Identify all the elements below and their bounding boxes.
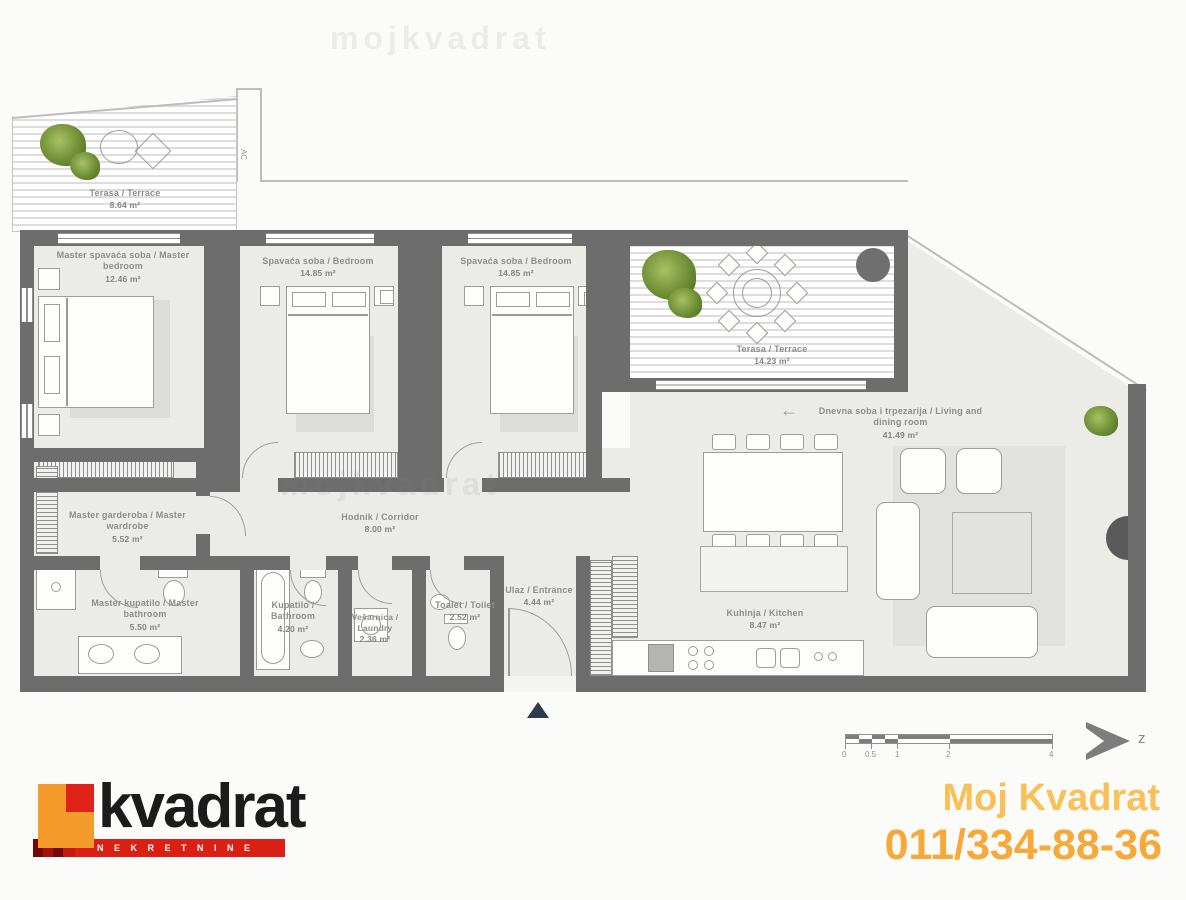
pillow xyxy=(292,292,326,307)
plant-icon xyxy=(668,288,702,318)
scale-bar xyxy=(845,734,1053,744)
coffee-table xyxy=(952,512,1032,594)
armchair xyxy=(956,448,1002,494)
entrance-door-leaf xyxy=(508,608,510,676)
dining-chair xyxy=(746,434,770,450)
window xyxy=(58,233,180,244)
room-area: 14.23 m² xyxy=(697,356,847,367)
watermark: mojkvadrat xyxy=(280,466,501,503)
roof-line-top xyxy=(260,180,908,182)
room-area: 4.44 m² xyxy=(504,597,574,608)
room-area: 8.00 m² xyxy=(340,524,420,535)
cabinet-icon xyxy=(648,644,674,672)
armchair xyxy=(900,448,946,494)
scale-tick-label: 2 xyxy=(946,750,950,759)
door-opening xyxy=(196,496,210,534)
room-area: 4.20 m² xyxy=(254,624,332,635)
sink-basin-icon xyxy=(780,648,800,668)
window xyxy=(21,288,33,322)
scale-tick-label: 0.5 xyxy=(865,750,876,759)
nightstand xyxy=(260,286,280,306)
room-label-terrace-2: Terasa / Terrace 14.23 m² xyxy=(697,344,847,367)
room-name: Dnevna soba i trpezarija / Living and di… xyxy=(818,406,983,429)
door-opening xyxy=(358,556,392,570)
pillow xyxy=(496,292,530,307)
watermark: mojkvadrat xyxy=(330,20,551,57)
room-label-corridor: Hodnik / Corridor 8.00 m² xyxy=(340,512,420,535)
door-opening xyxy=(290,556,326,570)
wall-terrace2-left xyxy=(602,230,630,392)
scale-segment xyxy=(898,735,950,739)
room-label-terrace-1: Terasa / Terrace 8.64 m² xyxy=(50,188,200,211)
room-label-toilet: Toalet / Toilet 2.52 m² xyxy=(430,600,500,623)
stove-burner-icon xyxy=(688,646,698,656)
sink-basin-icon xyxy=(756,648,776,668)
fridge-icon xyxy=(612,556,638,638)
room-name: Kupatilo / Bathroom xyxy=(254,600,332,623)
scale-tick-label: 0 xyxy=(842,750,846,759)
wall-entry-kitchen xyxy=(576,556,590,692)
room-area: 2.52 m² xyxy=(430,612,500,623)
stove-burner-icon xyxy=(688,660,698,670)
room-label-laundry: Vešarnica / Laundry 2.36 m² xyxy=(338,612,412,645)
room-label-living: Dnevna soba i trpezarija / Living and di… xyxy=(818,406,983,440)
room-label-entrance: Ulaz / Entrance 4.44 m² xyxy=(504,585,574,608)
terrace-dining-table-inner xyxy=(742,278,772,308)
plant-icon xyxy=(1084,406,1118,436)
entry-closet xyxy=(590,560,612,676)
dining-chair xyxy=(712,434,736,450)
room-label-bathroom: Kupatilo / Bathroom 4.20 m² xyxy=(254,600,332,634)
nightstand xyxy=(38,414,60,436)
room-name: Master kupatilo / Master bathroom xyxy=(80,598,210,621)
terrace-1-floor xyxy=(12,96,237,232)
scale-tick xyxy=(845,744,846,749)
wardrobe-closet xyxy=(498,452,600,478)
scale-segment xyxy=(950,739,1052,743)
room-label-bedroom-3: Spavaća soba / Bedroom 14.85 m² xyxy=(441,256,591,279)
dining-chair xyxy=(780,434,804,450)
door-arc xyxy=(430,570,464,604)
room-name: Terasa / Terrace xyxy=(50,188,200,199)
pillow xyxy=(332,292,366,307)
wall-right xyxy=(1128,384,1146,692)
fixture-icon xyxy=(814,652,823,661)
room-area: 14.85 m² xyxy=(243,268,393,279)
room-name: Kuhinja / Kitchen xyxy=(700,608,830,619)
room-label-bedroom-2: Spavaća soba / Bedroom 14.85 m² xyxy=(243,256,393,279)
room-area: 14.85 m² xyxy=(441,268,591,279)
scale-segment xyxy=(859,739,872,743)
wall-terrace2-right xyxy=(894,230,908,392)
room-label-master-bathroom: Master kupatilo / Master bathroom 5.50 m… xyxy=(80,598,210,632)
wall-master-wardrobe xyxy=(20,448,210,462)
pillow xyxy=(44,356,60,394)
wall-toilet-entry xyxy=(490,556,504,692)
toilet-bowl xyxy=(448,626,466,650)
scale-segment xyxy=(872,735,885,739)
scale-tick xyxy=(949,744,950,749)
room-area: 5.52 m² xyxy=(60,534,195,545)
wall-mbath-bath xyxy=(240,570,254,692)
north-label: z xyxy=(1138,730,1146,747)
scale-segment xyxy=(885,739,898,743)
sink-icon xyxy=(88,644,114,664)
plant-icon xyxy=(70,152,100,180)
room-area: 8.64 m² xyxy=(50,200,200,211)
window xyxy=(266,233,374,244)
wall-unit-icon xyxy=(380,290,394,304)
scale-segment xyxy=(846,735,859,739)
entrance-opening xyxy=(504,676,576,692)
sofa xyxy=(926,606,1038,658)
logo-text: kvadrat xyxy=(98,776,305,838)
door-arc xyxy=(210,496,246,536)
sink-icon xyxy=(134,644,160,664)
room-area: 5.50 m² xyxy=(80,622,210,633)
room-name: Toalet / Toilet xyxy=(430,600,500,611)
room-area: 12.46 m² xyxy=(48,274,198,285)
room-name: Spavaća soba / Bedroom xyxy=(243,256,393,267)
agency-phone: 011/334-88-36 xyxy=(885,822,1162,869)
fixture-icon xyxy=(828,652,837,661)
pillow xyxy=(44,304,60,342)
window xyxy=(21,404,33,438)
hot-tub-icon xyxy=(856,248,890,282)
wall-laundry-toilet xyxy=(412,570,426,692)
bed-line xyxy=(66,298,68,406)
pillow xyxy=(536,292,570,307)
terrace-door-window xyxy=(656,380,866,390)
scale-tick xyxy=(897,744,898,749)
wall-master-bed2 xyxy=(204,230,240,480)
room-area: 41.49 m² xyxy=(818,430,983,441)
window xyxy=(468,233,572,244)
ac-label: AC xyxy=(239,149,248,160)
agency-name: Moj Kvadrat xyxy=(943,778,1160,820)
wall-bed2-bed3 xyxy=(398,230,442,480)
room-name: Master garderoba / Master wardrobe xyxy=(60,510,195,533)
door-arc xyxy=(358,570,392,604)
nightstand xyxy=(464,286,484,306)
logo-red-square xyxy=(66,784,94,812)
room-label-wardrobe: Master garderoba / Master wardrobe 5.52 … xyxy=(60,510,195,544)
bed-line xyxy=(492,314,572,316)
kitchen-island xyxy=(700,546,848,592)
door-opening xyxy=(430,556,464,570)
stove-burner-icon xyxy=(704,660,714,670)
shower-drain-icon xyxy=(51,582,61,592)
sofa xyxy=(876,502,920,600)
orientation-arrow: ← xyxy=(780,400,798,421)
door-opening xyxy=(100,556,140,570)
room-label-kitchen: Kuhinja / Kitchen 8.47 m² xyxy=(700,608,830,631)
room-label-master-bedroom: Master spavaća soba / Master bedroom 12.… xyxy=(48,250,198,284)
room-area: 8.47 m² xyxy=(700,620,830,631)
room-name: Master spavaća soba / Master bedroom xyxy=(48,250,198,273)
door-arc xyxy=(242,442,278,478)
room-name: Vešarnica / Laundry xyxy=(338,612,412,633)
room-name: Hodnik / Corridor xyxy=(340,512,420,523)
roof-line-ac-right xyxy=(260,88,262,182)
room-name: Terasa / Terrace xyxy=(697,344,847,355)
scale-tick xyxy=(871,744,872,749)
terrace-table-icon xyxy=(100,130,138,164)
entrance-marker-icon xyxy=(527,702,549,718)
door-opening xyxy=(240,478,278,492)
floorplan-page: AC xyxy=(0,0,1186,900)
entrance-door-arc xyxy=(508,608,572,676)
sink-icon xyxy=(300,640,324,658)
north-arrow-notch xyxy=(1086,728,1104,754)
room-name: Ulaz / Entrance xyxy=(504,585,574,596)
scale-tick-label: 4 xyxy=(1049,750,1053,759)
dining-table xyxy=(703,452,843,532)
room-area: 2.36 m² xyxy=(338,634,412,645)
logo-tagline: NEKRETNINE xyxy=(97,843,261,853)
bed-line xyxy=(288,314,368,316)
room-name: Spavaća soba / Bedroom xyxy=(441,256,591,267)
scale-tick xyxy=(1052,744,1053,749)
wall-terrace2-top xyxy=(630,230,908,246)
roof-line-ac-top xyxy=(236,88,262,90)
scale-tick-label: 1 xyxy=(895,750,899,759)
stove-burner-icon xyxy=(704,646,714,656)
